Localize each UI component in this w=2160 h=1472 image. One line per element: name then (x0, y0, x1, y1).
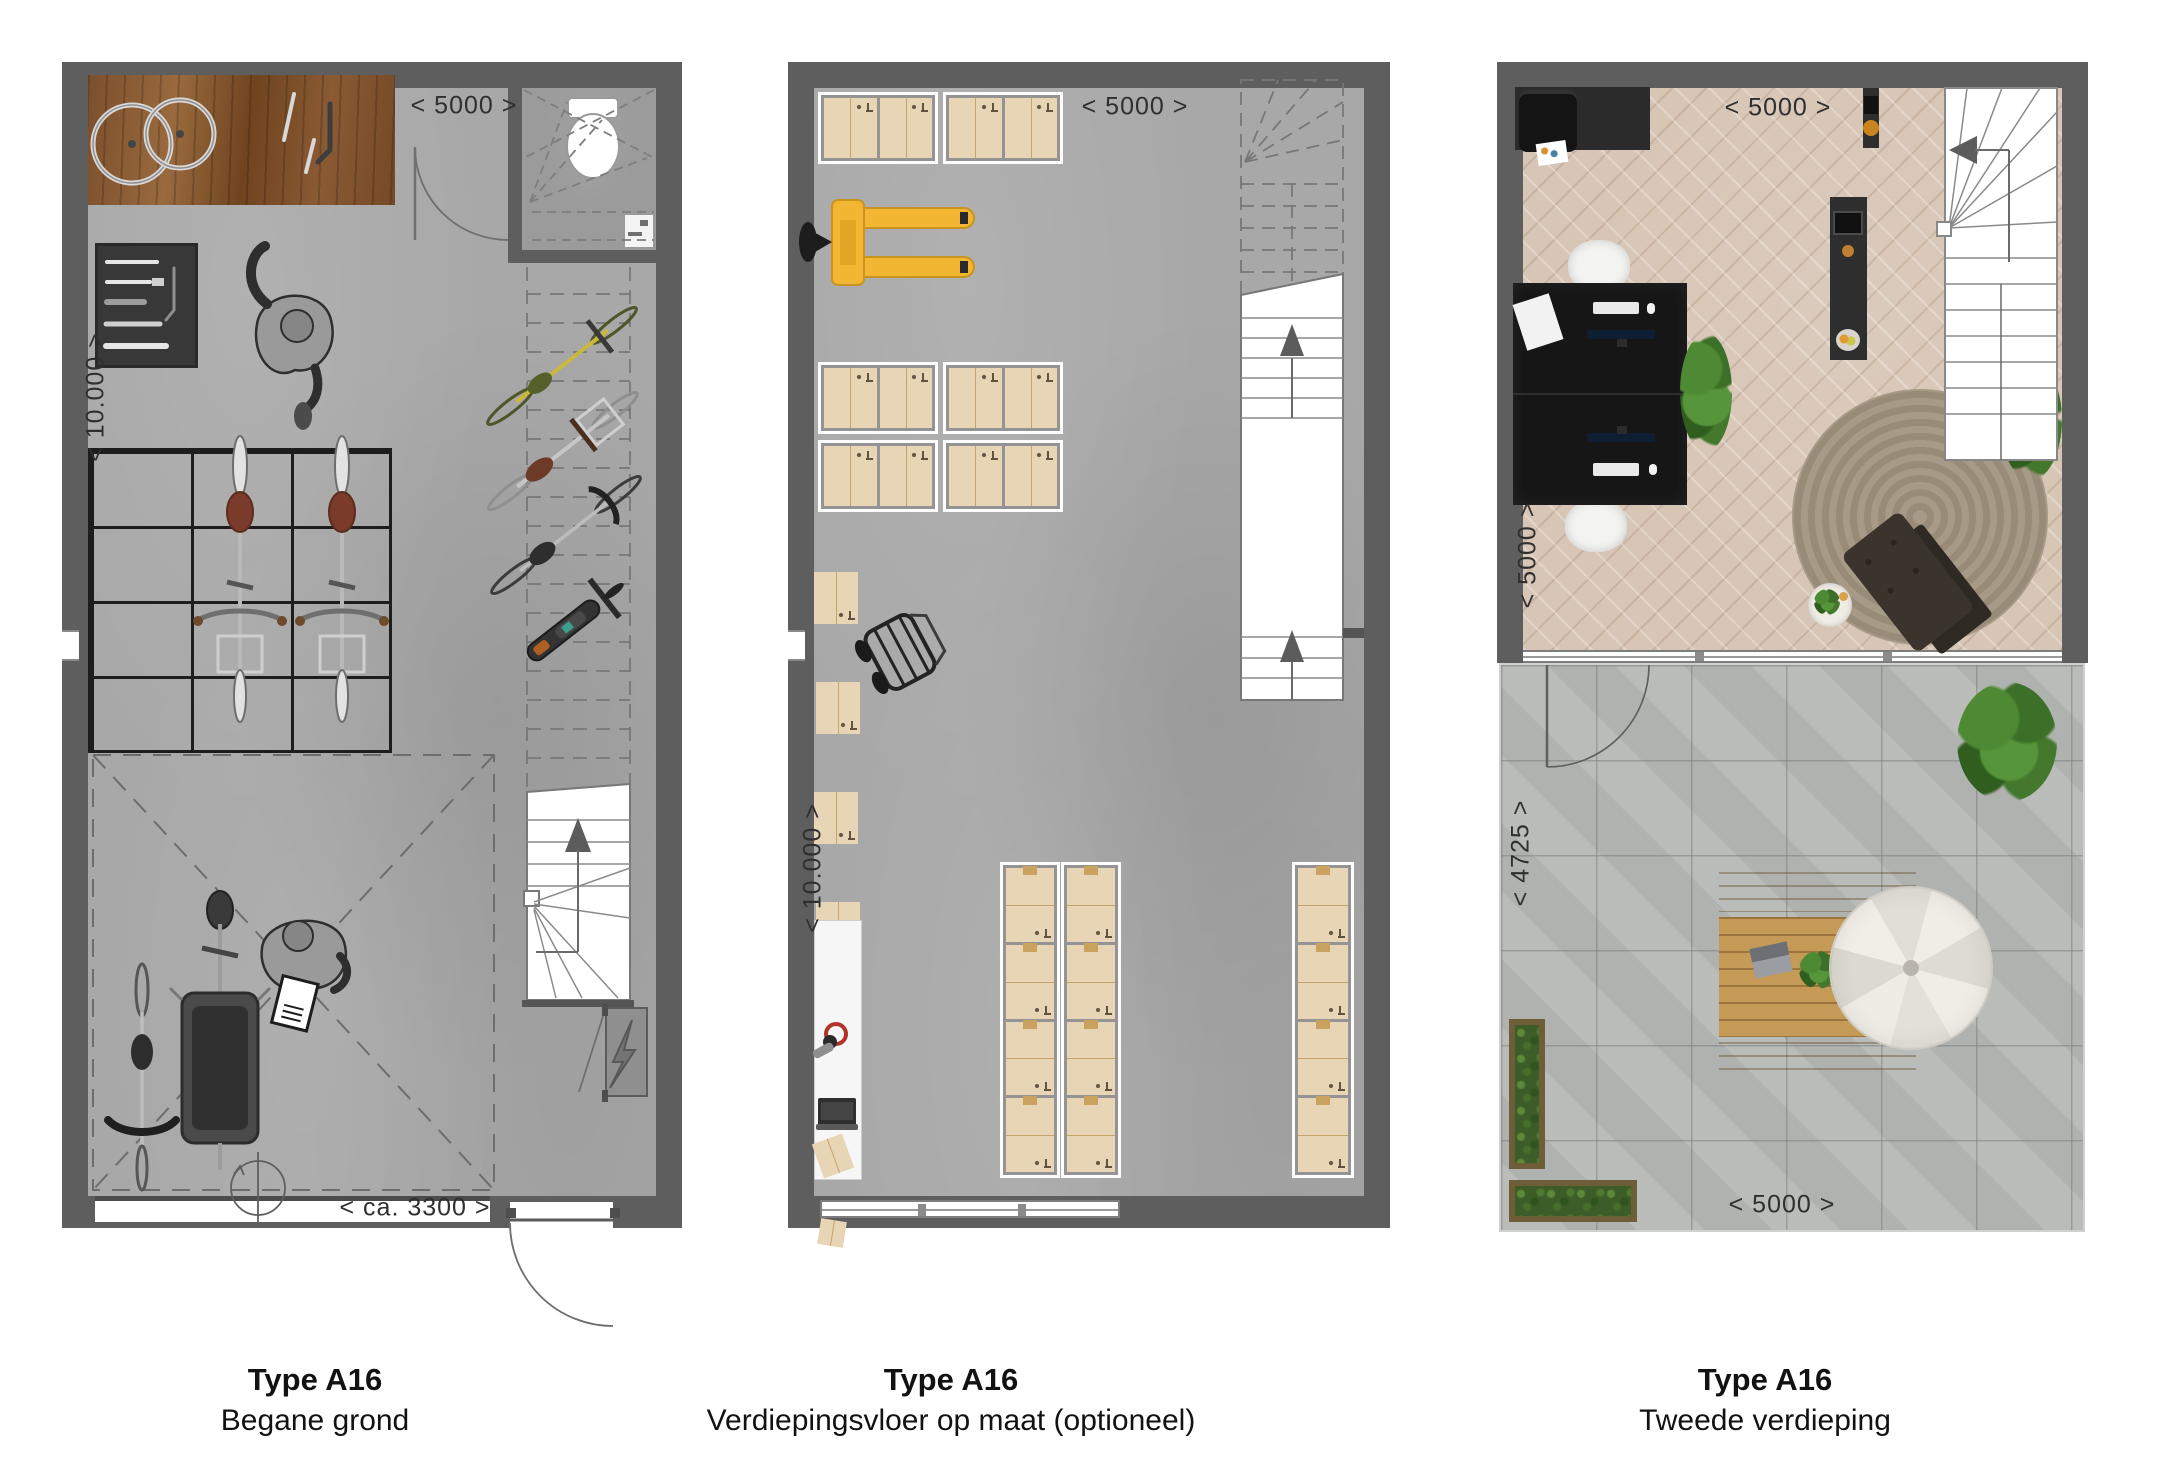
plan1-linework (62, 62, 682, 1382)
dim-depth-left: < 10.000 > (799, 803, 828, 933)
plan-subtitle: Verdiepingsvloer op maat (optioneel) (707, 1403, 1196, 1439)
terrace-door-swing (1501, 665, 2087, 1234)
floorplan-sheet: < 5000 > < 10.000 > < ca. 3300 > (0, 0, 2160, 1472)
caption-verdiepingsvloer: Type A16 Verdiepingsvloer op maat (optio… (707, 1362, 1196, 1439)
rotation-arrow-icon (231, 1152, 285, 1225)
plan-tweede-verdieping: < 5000 > < 5000 > (1497, 62, 2088, 663)
staircase-up (1241, 274, 1343, 700)
toilet (567, 98, 619, 178)
bicycle-in-rack (193, 436, 287, 722)
panel-door-line (579, 1010, 605, 1092)
plan2-linework (788, 62, 1390, 1228)
sink (624, 214, 654, 248)
dim-terrace-depth: < 4725 > (1507, 800, 1536, 907)
hanging-bicycle (476, 292, 649, 439)
roof-terrace: < 4725 > < 5000 > (1499, 663, 2085, 1232)
plan-verdiepingsvloer: < 5000 > < 10.000 > (788, 62, 1390, 1228)
plan-title: Type A16 (1639, 1362, 1891, 1398)
caption-begane-grond: Type A16 Begane grond (221, 1362, 410, 1439)
hand-truck (851, 605, 951, 699)
pallet-jack (799, 200, 974, 285)
plan3-linework (1497, 62, 2088, 663)
bench-tools (284, 94, 330, 172)
dim-garage-door: < ca. 3300 > (339, 1194, 490, 1223)
fire-extinguisher (1863, 120, 1879, 136)
mezzanine-dashed-outline (527, 267, 630, 792)
bike-wheels-on-bench (93, 100, 214, 183)
electric-scooter (515, 565, 638, 676)
staircase-up (522, 784, 634, 1007)
tape-dispenser (811, 1024, 846, 1060)
bicycle-in-rack (295, 436, 389, 722)
bicycle (108, 964, 176, 1190)
person-walking (251, 246, 333, 430)
stair-wall-tie (1343, 628, 1364, 638)
dim-terrace-width: < 5000 > (1729, 1191, 1836, 1220)
dim-depth-left: < 10.000 > (82, 332, 111, 462)
lightning-bolt-icon (579, 1004, 635, 1102)
dim-depth-left-upper: < 5000 > (1514, 502, 1543, 609)
staircase-down (1863, 88, 2057, 460)
dim-width-top: < 5000 > (1082, 93, 1189, 122)
dim-width-top: < 5000 > (411, 92, 518, 121)
plan-subtitle: Begane grond (221, 1403, 410, 1439)
tool-board-tools (106, 262, 174, 346)
plan-begane-grond: < 5000 > < 10.000 > < ca. 3300 > (62, 62, 682, 1228)
person-with-clipboard (262, 921, 348, 1031)
caption-tweede-verdieping: Type A16 Tweede verdieping (1639, 1362, 1891, 1439)
cargo-bike (170, 891, 270, 1170)
plan-subtitle: Tweede verdieping (1639, 1403, 1891, 1439)
hanging-bicycle (478, 460, 653, 610)
plan-title: Type A16 (221, 1362, 410, 1398)
stair-above-dashed (1241, 80, 1343, 295)
plan-title: Type A16 (707, 1362, 1196, 1398)
dim-width-top: < 5000 > (1725, 94, 1832, 123)
hanging-bicycle (477, 377, 650, 524)
laptop (816, 1098, 858, 1130)
toilet-door-swing (415, 147, 508, 240)
entrance-door-swing (506, 1208, 620, 1326)
